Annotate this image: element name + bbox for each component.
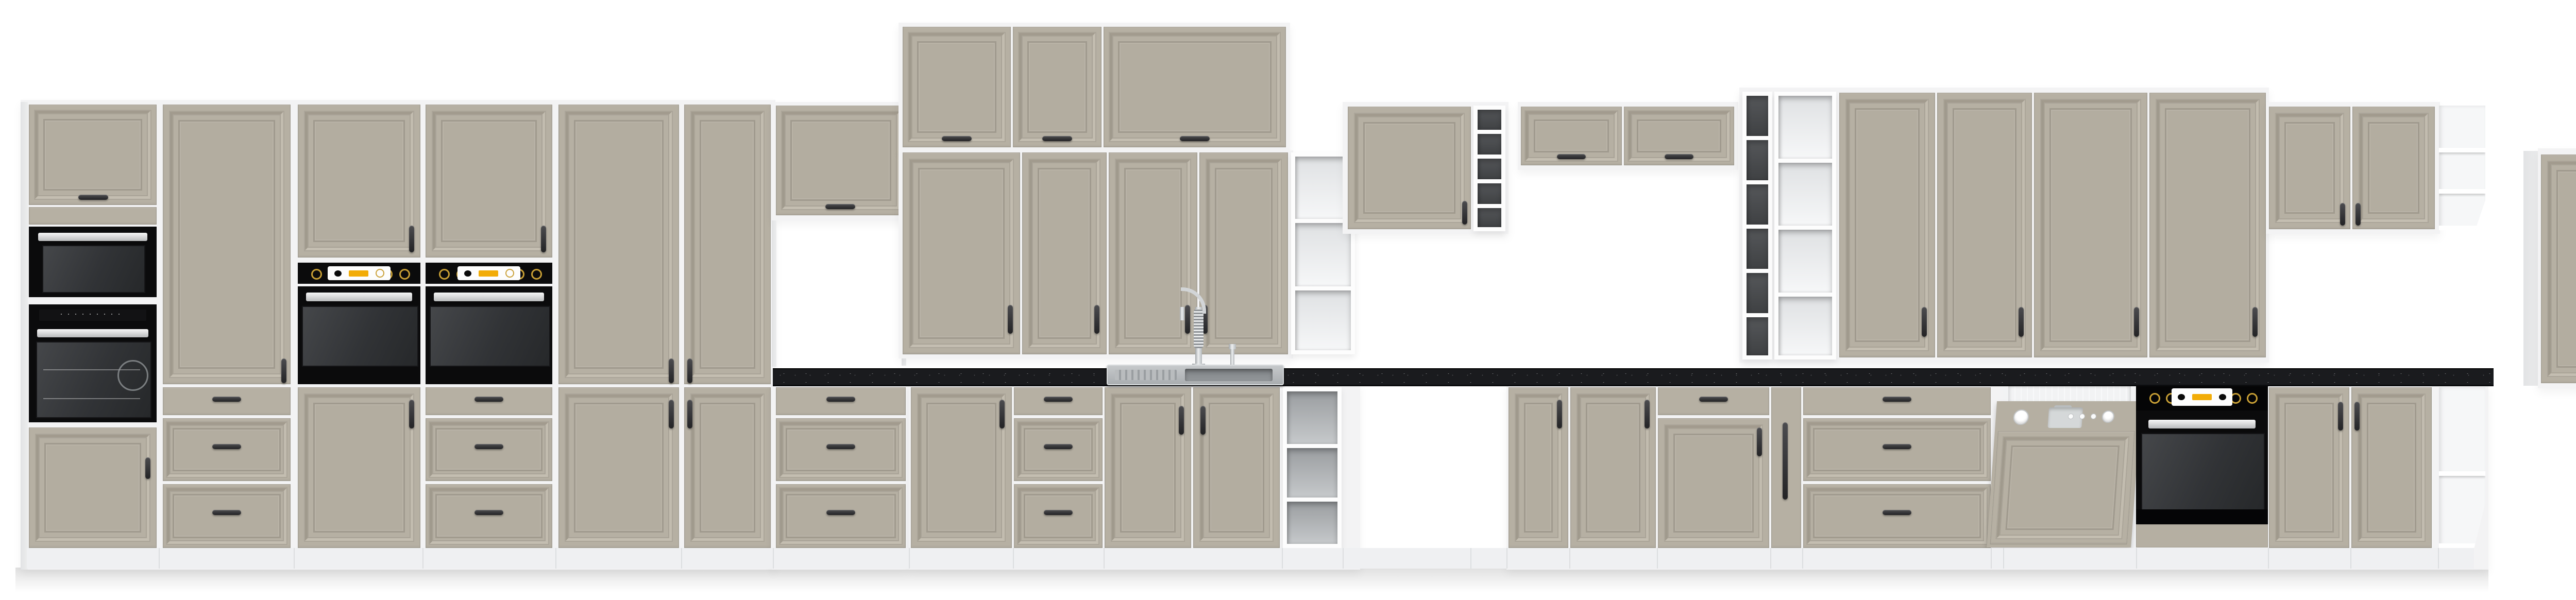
cabinet-handle: [78, 195, 108, 200]
gap-base-drawer-mid: [776, 418, 906, 481]
countertop: [773, 368, 2494, 386]
base-50-door: [1658, 418, 1769, 548]
built-in-microwave: [29, 227, 157, 297]
cabinet-handle: [2338, 402, 2343, 431]
plinth-seam: [1343, 548, 1344, 569]
sink-drainer-icon: [1115, 370, 1177, 380]
plinth: [27, 548, 2474, 569]
right-wall-door-left: [2269, 107, 2350, 229]
cabinet-handle: [212, 510, 241, 515]
plinth-seam: [1013, 548, 1014, 569]
floor-shadow: [15, 568, 2488, 592]
cabinet-handle: [826, 510, 855, 515]
dishwasher-knob-icon: [2013, 409, 2029, 425]
dishwasher-lower-panel: [1990, 431, 2135, 544]
plinth-seam: [1802, 548, 1803, 569]
tall-unit2-drawer-bot: [163, 484, 291, 548]
cabinet-handle: [1200, 406, 1206, 435]
gap-side-left: [772, 220, 776, 367]
shelf-compartment: [1287, 391, 1337, 444]
shelf-compartment: [1778, 230, 1832, 293]
dishwasher-button-icon: [2091, 414, 2097, 419]
shelf-compartment: [1287, 448, 1337, 498]
plinth-seam: [1506, 548, 1507, 569]
tall-unit1-lower-door: [29, 427, 157, 548]
sink-upper-flip2: [1013, 27, 1101, 147]
tallwall-door4: [2149, 93, 2266, 357]
cabinet-handle: [1645, 400, 1650, 428]
tall-unit2-door: [163, 105, 291, 384]
cabinet-handle: [826, 444, 855, 449]
gap-base-drawer-bot: [776, 484, 906, 548]
right-base-corner-shelf: [2439, 387, 2485, 548]
shelf-board: [2439, 148, 2485, 152]
tallwall-narrow-shelf: [1742, 92, 1772, 359]
tall-unit4-lower-door: [684, 387, 771, 548]
power-dot-icon: [464, 270, 471, 277]
right-base-door-left: [2269, 387, 2349, 548]
dial-ring-icon: [505, 269, 514, 278]
oven-display: [39, 310, 146, 321]
cabinet-handle: [1044, 444, 1073, 449]
shelf-compartment: [1778, 297, 1832, 355]
plinth-seam: [422, 548, 423, 569]
oven-handle: [37, 329, 148, 337]
knob-icon: [399, 269, 410, 280]
shelf-board: [2439, 226, 2485, 230]
shelf-compartment: [1747, 184, 1768, 225]
base-door-40: [1570, 387, 1656, 548]
cabinet-handle: [2355, 203, 2361, 226]
shelf-compartment: [1478, 110, 1501, 130]
shelf-compartment: [1778, 163, 1832, 226]
tall-unit4-door: [684, 105, 771, 384]
cabinet-handle: [1094, 305, 1099, 334]
cabinet-handle: [1557, 400, 1562, 428]
cabinet-handle: [1462, 201, 1467, 225]
knob-icon: [439, 269, 450, 280]
dishwasher-tub: [2008, 384, 2131, 402]
oven-display: [457, 266, 520, 280]
mid-wall-door: [1348, 107, 1471, 229]
cabinet-handle: [1757, 427, 1762, 456]
sink-base-open-shelf: [1283, 387, 1342, 548]
plinth-seam: [2350, 548, 2351, 569]
plinth-seam: [1657, 548, 1658, 569]
shelf-compartment: [1478, 208, 1501, 227]
oven-tower2-control-panel: [426, 263, 552, 284]
sink-bowl: [1185, 369, 1273, 381]
cooker-control-panel: [2136, 384, 2268, 410]
cabinet-handle: [1883, 510, 1911, 515]
base-80-drawer-bot: [1803, 484, 1991, 548]
tall-unit3-lower-door: [558, 387, 679, 548]
shelf-board: [2439, 189, 2485, 194]
cabinet-handle: [2340, 203, 2345, 226]
sink-upper-flip1: [903, 27, 1011, 147]
plinth-seam: [1770, 548, 1771, 569]
knob-icon: [2247, 393, 2258, 404]
oven-handle: [306, 293, 412, 301]
cabinet-handle: [1922, 307, 1927, 337]
cabinet-handle: [2252, 307, 2258, 337]
cooker-window: [2141, 433, 2265, 511]
cooker-base-strip: [2136, 524, 2268, 547]
oven-window: [302, 306, 418, 367]
plinth-seam: [2438, 548, 2439, 569]
cabinet-handle: [281, 358, 286, 383]
oven-window: [36, 341, 151, 418]
oven-fan-icon: [117, 360, 148, 391]
shelf-compartment: [1747, 96, 1768, 136]
oven-rack: [43, 398, 140, 399]
sink-wall-door4: [1199, 152, 1288, 354]
cabinet-handle: [669, 400, 674, 428]
plinth-seam: [909, 548, 910, 569]
oven-tower2-drawer-bot: [426, 484, 552, 548]
dot-icon: [2219, 394, 2226, 400]
right-wall-corner-shelf: [2439, 106, 2485, 230]
plinth-seam: [1104, 548, 1105, 569]
power-dot-icon: [334, 270, 342, 277]
cabinet-handle: [825, 204, 855, 209]
cabinet-handle: [942, 136, 972, 141]
right-wall-door-right: [2352, 107, 2435, 229]
shelf-compartment: [1478, 159, 1501, 179]
shelf-compartment: [1747, 229, 1768, 269]
oven-tower1-oven: [298, 286, 420, 384]
sink-cabinet-door-right: [1193, 387, 1280, 548]
cabinet-handle: [999, 400, 1005, 428]
timer-accent-icon: [349, 270, 368, 277]
sink-base-drawer-bot: [1014, 484, 1103, 548]
shelf-compartment: [1478, 134, 1501, 155]
tall-unit3-door: [558, 105, 679, 384]
shelf-board: [2439, 471, 2485, 476]
dishwasher-door: [1987, 401, 2141, 547]
plinth-seam: [1282, 548, 1283, 569]
cabinet-handle: [474, 510, 503, 515]
cabinet-handle: [409, 400, 414, 428]
tall-unit1-filler-front: [29, 207, 157, 225]
tallwall-door3: [2034, 93, 2147, 357]
plinth-seam: [2003, 548, 2004, 569]
cooker-handle: [2148, 420, 2256, 428]
dishwasher-half-open: [2003, 384, 2136, 547]
microwave-window: [42, 245, 145, 293]
cabinet-handle: [669, 358, 674, 383]
tallwall-door1: [1839, 93, 1935, 357]
knob-icon: [531, 269, 542, 280]
cabinet-handle: [2134, 307, 2139, 337]
cabinet-handle: [1042, 136, 1072, 141]
cabinet-handle: [1665, 154, 1693, 159]
microwave-handle: [38, 233, 147, 241]
sink-wall-door3: [1109, 152, 1197, 354]
cabinet-handle: [474, 444, 503, 449]
farright-door1: [2541, 155, 2576, 383]
plinth-seam: [555, 548, 556, 569]
knob-icon: [311, 269, 322, 280]
shelf-compartment: [1747, 317, 1768, 355]
cooker-bottom-band: [2136, 509, 2268, 524]
tall-unit1-flip-door: [29, 105, 157, 205]
plinth-seam: [1991, 548, 1992, 569]
cabinet-handle: [687, 400, 692, 428]
cabinet-handle: [1202, 305, 1208, 334]
dishwasher-door-pocket: [2047, 407, 2083, 428]
cabinet-handle: [145, 457, 150, 479]
shelf-compartment: [1747, 140, 1768, 180]
cabinet-handle: [1179, 406, 1184, 435]
gap-wall-flip-door: [776, 106, 906, 215]
dishwasher-dial-icon: [2102, 410, 2115, 423]
plinth-seam: [773, 548, 774, 569]
shelf-compartment: [1287, 502, 1337, 544]
cabinet-handle: [1008, 305, 1013, 334]
cabinet-handle: [1044, 510, 1073, 515]
oven-tower2-top-door: [426, 105, 552, 258]
plinth-seam: [159, 548, 160, 569]
plinth-seam: [1569, 548, 1570, 569]
oven-tower2-drawer-mid: [426, 418, 552, 481]
timer-accent-icon: [479, 270, 498, 277]
cabinet-handle: [687, 358, 692, 383]
plinth-seam: [2268, 548, 2269, 569]
dishwasher-button-icon: [2079, 414, 2086, 419]
right-base-door-right: [2351, 387, 2432, 548]
cabinet-handle: [1044, 397, 1073, 402]
cabinet-handle: [541, 226, 546, 252]
tallwall-door2: [1937, 93, 2032, 357]
sink-upper-flip3: [1104, 27, 1286, 147]
cabinet-handle: [1883, 444, 1911, 449]
dot-icon: [2178, 394, 2185, 400]
kitchen-render-canvas: [0, 0, 2576, 600]
plinth-seam: [1470, 548, 1471, 569]
cabinet-handle: [409, 226, 414, 252]
plinth-seam: [681, 548, 682, 569]
sink-cabinet-door-left: [1105, 387, 1191, 548]
cabinet-handle: [1783, 422, 1788, 500]
built-in-oven-with-display: [29, 304, 157, 422]
shelf-compartment: [1295, 290, 1351, 350]
cabinet-handle: [826, 397, 855, 402]
cabinet-handle: [2019, 307, 2024, 337]
oven-display: [328, 266, 391, 280]
plinth-seam: [294, 548, 295, 569]
cabinet-handle: [1180, 136, 1210, 141]
oven-tower1-top-door: [298, 105, 420, 258]
sink-wall-door1: [903, 152, 1020, 354]
sink-base-drawer-mid: [1014, 418, 1103, 481]
cabinet-handle: [1883, 397, 1911, 402]
cooker-black: [2136, 384, 2268, 547]
shelf-compartment: [1478, 183, 1501, 204]
base-80-drawer-mid: [1803, 418, 1991, 481]
shelf-compartment: [1778, 96, 1832, 159]
left-end-side-panel: [21, 102, 28, 570]
sink-base-door-left: [911, 387, 1012, 548]
cabinet-handle: [212, 397, 241, 402]
cabinet-handle: [1699, 397, 1728, 402]
oven-tower1-lower-door: [298, 387, 420, 548]
oven-handle: [434, 293, 544, 301]
cabinet-handle: [212, 444, 241, 449]
cooker-display: [2172, 388, 2232, 406]
oven-tower1-control-panel: [298, 263, 420, 284]
oven-tower2-oven: [426, 286, 552, 384]
plinth-seam: [2136, 548, 2137, 569]
cabinet-handle: [1557, 154, 1586, 159]
knob-icon: [2149, 393, 2160, 404]
sink-inset: [1107, 365, 1284, 385]
cabinet-handle: [2354, 402, 2360, 431]
mid-wall-narrow-shelf: [1473, 106, 1505, 231]
dial-ring-icon: [376, 269, 384, 278]
tall-unit2-drawer-mid: [163, 418, 291, 481]
cabinet-handle: [1185, 305, 1190, 334]
shelf-compartment: [1747, 273, 1768, 313]
cabinet-handle: [474, 397, 503, 402]
accent-icon: [2192, 394, 2212, 400]
tallwall-open-shelf: [1774, 92, 1836, 359]
oven-window: [430, 306, 550, 367]
